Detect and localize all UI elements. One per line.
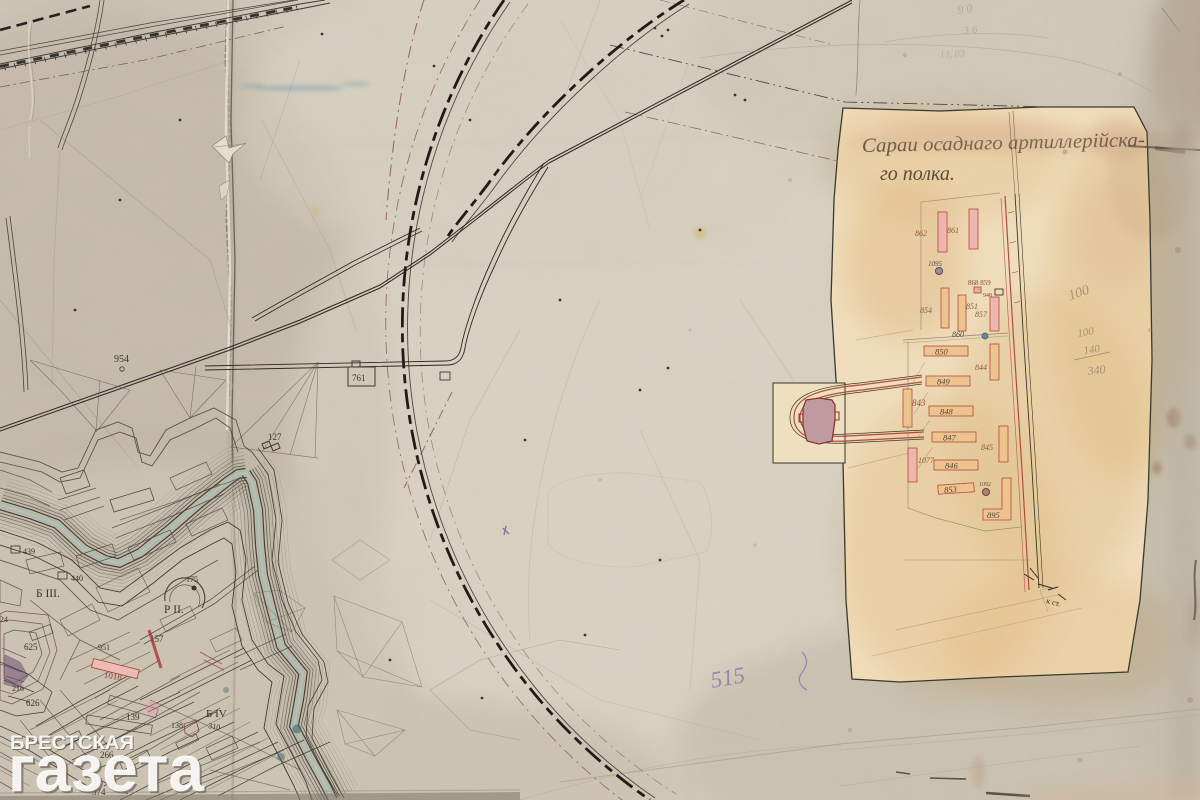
svg-text:газета: газета bbox=[8, 731, 205, 800]
